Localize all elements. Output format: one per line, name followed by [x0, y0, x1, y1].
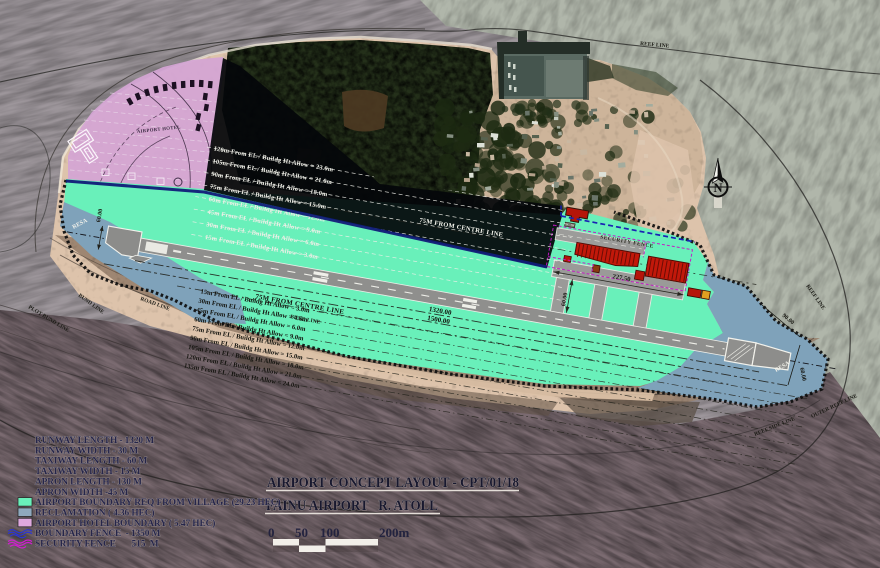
svg-text:APRON WIDTH -45 M: APRON WIDTH -45 M [35, 488, 128, 498]
svg-text:APRON LENGTH - 130 M: APRON LENGTH - 130 M [35, 477, 142, 487]
svg-text:N: N [713, 181, 722, 195]
svg-text:TAXIWAY LENGTH - 60 M: TAXIWAY LENGTH - 60 M [35, 457, 147, 467]
svg-text:200m: 200m [379, 525, 410, 540]
svg-text:RUNWAY WIDTH - 30 M: RUNWAY WIDTH - 30 M [35, 446, 138, 456]
svg-text:AIRPORT HOTEL BOUNDARY ( 5.47: AIRPORT HOTEL BOUNDARY ( 5.47 HEC) [35, 518, 215, 529]
svg-text:RUNWAY LENGTH - 1320 M: RUNWAY LENGTH - 1320 M [35, 436, 154, 446]
svg-text:FAINU AIRPORT R. ATOLL: FAINU AIRPORT R. ATOLL [266, 498, 438, 514]
svg-text:AIRPORT BOUNDARY REQ FROM VILL: AIRPORT BOUNDARY REQ FROM VILLAGE (29.23… [35, 497, 280, 508]
svg-text:BOUNDARY FENCE - 1350 M: BOUNDARY FENCE - 1350 M [35, 529, 161, 539]
svg-text:AIRPORT CONCEPT LAYOUT - CPT/0: AIRPORT CONCEPT LAYOUT - CPT/01/18 [267, 475, 519, 491]
svg-text:50: 50 [295, 525, 308, 540]
svg-text:RECLAMATION ( 4.36 HEC): RECLAMATION ( 4.36 HEC) [35, 507, 154, 518]
svg-text:100: 100 [320, 525, 340, 540]
svg-text:SECURITY FENCE 515 M: SECURITY FENCE 515 M [35, 540, 159, 550]
svg-text:0: 0 [268, 525, 275, 540]
svg-text:TAXIWAY WIDTH - 15 M: TAXIWAY WIDTH - 15 M [35, 467, 141, 477]
